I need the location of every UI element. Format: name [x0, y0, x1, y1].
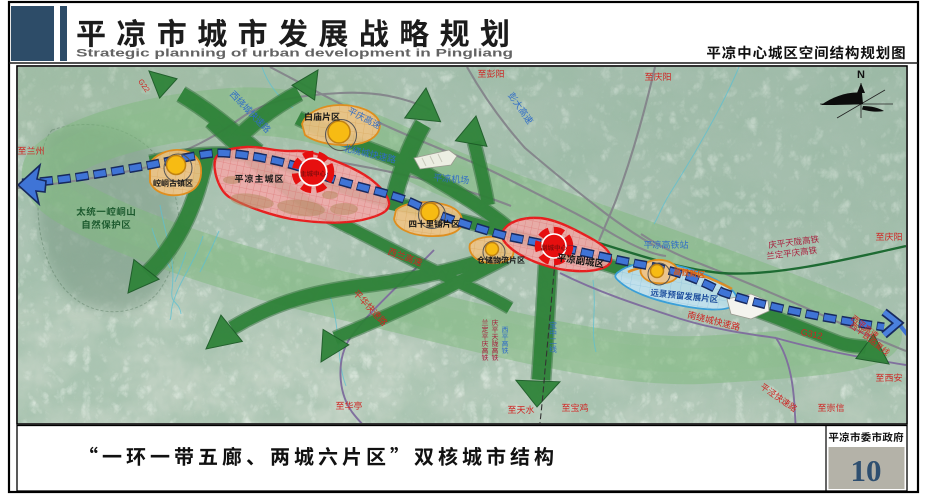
svg-text:N: N	[857, 69, 865, 81]
svg-text:10: 10	[851, 453, 882, 488]
svg-text:Strategic planning of urban de: Strategic planning of urban development …	[76, 48, 513, 60]
